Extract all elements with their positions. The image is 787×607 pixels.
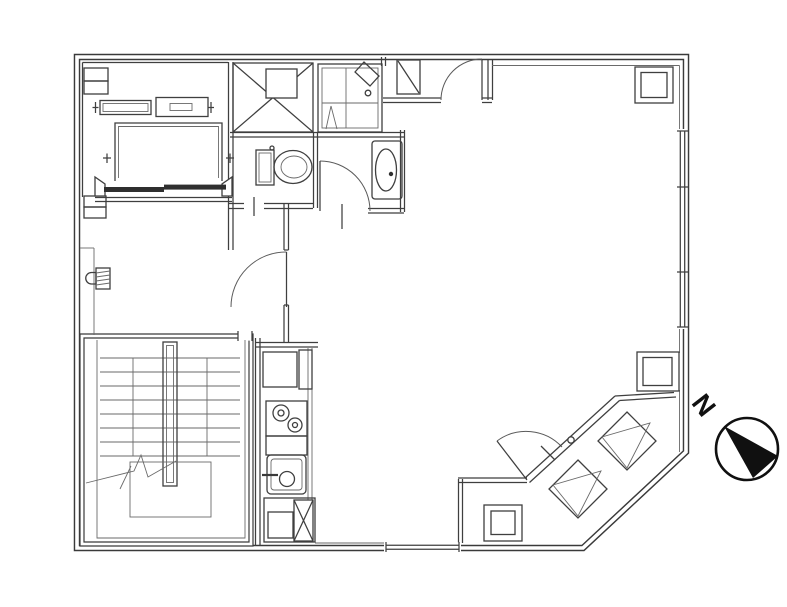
stairwell	[82, 331, 252, 544]
window-right-wall	[677, 129, 689, 329]
toilet	[256, 146, 312, 185]
shower-drain-cone	[326, 106, 337, 129]
pipe-shaft-x	[233, 63, 313, 132]
kitchen-sink	[262, 455, 306, 494]
shower-room	[318, 62, 382, 132]
outdoor-ac-unit-1	[549, 460, 607, 518]
meter-box	[86, 268, 110, 289]
two-burner-stove	[266, 401, 307, 436]
top-closet	[397, 60, 420, 94]
refrigerator-space	[263, 350, 312, 389]
column-top-right	[635, 67, 673, 103]
shower-pivot-door	[355, 62, 379, 86]
elevator-machine	[93, 98, 215, 117]
pipe-shaft-x-kitchen	[264, 498, 315, 542]
north-compass: N	[686, 388, 778, 480]
structural-columns	[484, 67, 679, 541]
column-mid-right	[637, 352, 679, 391]
doors	[231, 59, 562, 480]
floor-plan-drawing: N	[0, 0, 787, 607]
vanity-basin	[372, 141, 402, 199]
north-label: N	[686, 388, 722, 422]
stair-treads	[100, 358, 240, 456]
kitchen-counter	[266, 436, 307, 455]
floor-plan-canvas: N	[0, 0, 787, 607]
outdoor-ac-unit-2	[598, 412, 656, 470]
elevator	[84, 68, 234, 218]
column-balcony	[484, 505, 522, 541]
stair-landing	[130, 462, 211, 517]
interior-walls	[80, 57, 680, 546]
elevator-car	[103, 123, 234, 181]
window-bottom-wall	[384, 542, 461, 552]
balcony-sliding-door	[525, 396, 620, 483]
kitchen	[262, 350, 315, 542]
